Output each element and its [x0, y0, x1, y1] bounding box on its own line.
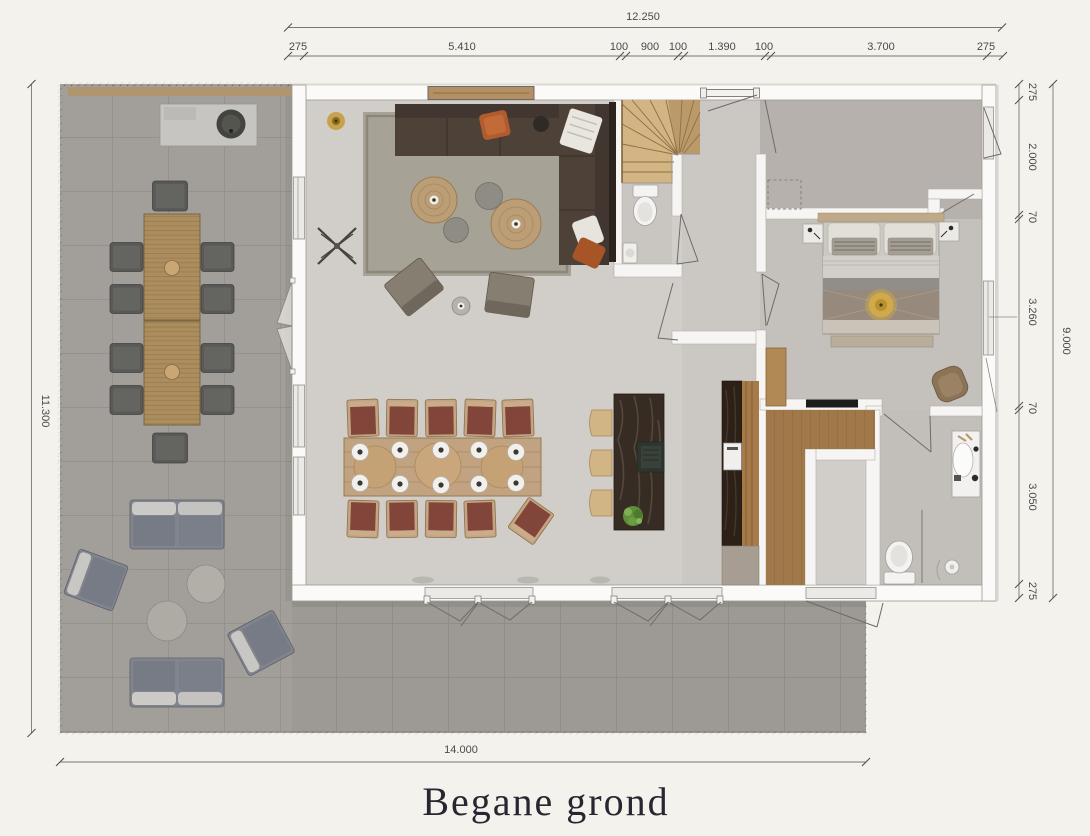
- svg-text:3.700: 3.700: [867, 41, 895, 53]
- svg-text:100: 100: [755, 41, 773, 53]
- svg-text:100: 100: [610, 41, 628, 53]
- svg-text:9.000: 9.000: [1060, 327, 1072, 355]
- svg-text:275: 275: [977, 41, 995, 53]
- svg-text:3.050: 3.050: [1026, 483, 1038, 511]
- svg-text:12.250: 12.250: [626, 11, 660, 23]
- svg-text:275: 275: [289, 41, 307, 53]
- svg-text:11.300: 11.300: [39, 395, 51, 428]
- svg-text:3.260: 3.260: [1026, 298, 1038, 326]
- svg-text:275: 275: [1026, 83, 1038, 101]
- svg-text:100: 100: [669, 41, 687, 53]
- svg-text:5.410: 5.410: [448, 41, 476, 53]
- svg-text:2.000: 2.000: [1026, 143, 1038, 171]
- svg-text:275: 275: [1026, 582, 1038, 600]
- svg-text:900: 900: [641, 41, 659, 53]
- svg-text:1.390: 1.390: [708, 41, 736, 53]
- svg-text:14.000: 14.000: [444, 744, 478, 756]
- svg-text:Begane grond: Begane grond: [422, 779, 669, 824]
- svg-text:70: 70: [1026, 211, 1038, 223]
- svg-text:70: 70: [1026, 402, 1038, 414]
